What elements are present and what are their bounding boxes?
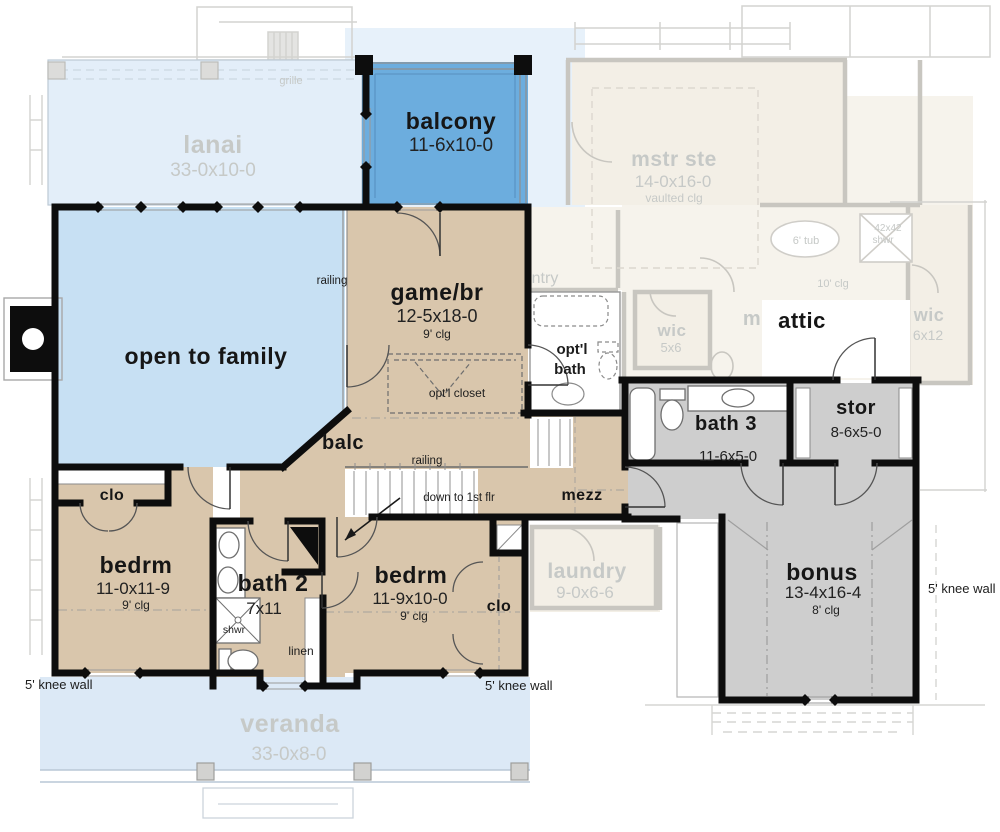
ghost-label-mstr-ste: mstr ste [631, 148, 717, 171]
label-lanai-dims: 33-0x10-0 [170, 160, 256, 181]
ghost-label-wic-small-dims: 5x6 [661, 340, 682, 355]
label-bath3: bath 3 [695, 413, 757, 435]
label-bedrm2-clg: 9' clg [400, 609, 428, 623]
ghost-label-tub: 6' tub [793, 235, 820, 247]
bonus-side-closet [677, 523, 718, 697]
label-open-to-family: open to family [125, 343, 288, 369]
label-veranda: veranda [240, 710, 340, 738]
ghost-label-shwr: shwr [872, 235, 894, 246]
ghost-label-laundry: laundry [547, 560, 626, 583]
ghost-label-wic-large: wic [913, 305, 945, 325]
label-veranda-dims: 33-0x8-0 [252, 744, 327, 765]
ghost-label-10clg: 10' clg [817, 278, 848, 290]
ghost-label-wic-small: wic [657, 321, 687, 340]
label-balcony: balcony [406, 108, 496, 134]
label-bath2-shwr: shwr [223, 624, 246, 636]
label-game-clg: 9' clg [423, 327, 451, 341]
room-open-to-family [55, 207, 345, 467]
label-bonus-clg: 8' clg [812, 603, 840, 617]
label-grille: grille [279, 75, 302, 87]
label-game-br: game/br [391, 279, 484, 305]
label-balcony-dims: 11-6x10-0 [409, 135, 493, 156]
label-railing-stairs: railing [412, 455, 443, 467]
ghost-label-mstr-dims: 14-0x16-0 [635, 172, 712, 191]
ghost-label-shwr-size: 42x42 [874, 223, 902, 234]
label-knee-right: 5' knee wall [928, 581, 996, 596]
ghost-label-mstr-clg: vaulted clg [645, 191, 702, 205]
label-optl-bath-1: opt'l [556, 341, 587, 358]
room-stor [793, 383, 916, 463]
label-clo-right: clo [487, 598, 512, 615]
label-bedrm1-clg: 9' clg [122, 598, 150, 612]
ghost-label-pantry: ntry [532, 270, 559, 287]
vestibule [240, 467, 347, 521]
ghost-label-mstr-partial: m [743, 308, 761, 330]
label-game-dims: 12-5x18-0 [396, 306, 477, 326]
label-balc: balc [322, 432, 364, 454]
label-lanai: lanai [183, 131, 242, 159]
label-bonus: bonus [786, 559, 858, 585]
label-optl-bath-2: bath [554, 361, 586, 378]
label-stor-dims: 8-6x5-0 [831, 424, 882, 441]
label-bedrm1: bedrm [100, 552, 173, 578]
label-bath2: bath 2 [238, 570, 309, 596]
ghost-label-laundry-dims: 9-0x6-6 [556, 583, 614, 602]
ghost-label-wic-large-dims: 6x12 [913, 327, 944, 343]
label-bedrm2-dims: 11-9x10-0 [372, 589, 447, 608]
label-knee-left: 5' knee wall [25, 677, 93, 692]
floor-plan-svg: mstr ste 14-0x16-0 vaulted clg 6' tub 42… [0, 0, 1000, 832]
label-optl-closet: opt'l closet [429, 386, 486, 400]
label-railing-top: railing [317, 275, 348, 287]
corridor [628, 463, 916, 519]
label-bedrm2: bedrm [375, 562, 448, 588]
label-bonus-dims: 13-4x16-4 [785, 583, 862, 602]
label-linen: linen [288, 644, 313, 658]
label-down: down to 1st flr [423, 492, 495, 504]
label-bath3-dims: 11-6x5-0 [699, 448, 757, 465]
label-bedrm1-dims: 11-0x11-9 [96, 579, 170, 598]
label-mezz: mezz [561, 487, 602, 504]
label-clo-left: clo [100, 487, 125, 504]
label-attic: attic [778, 308, 826, 333]
floor-plan-page: mstr ste 14-0x16-0 vaulted clg 6' tub 42… [0, 0, 1000, 832]
label-knee-mid: 5' knee wall [485, 678, 553, 693]
label-bath2-dims: 7x11 [246, 599, 282, 618]
label-stor: stor [836, 397, 876, 419]
